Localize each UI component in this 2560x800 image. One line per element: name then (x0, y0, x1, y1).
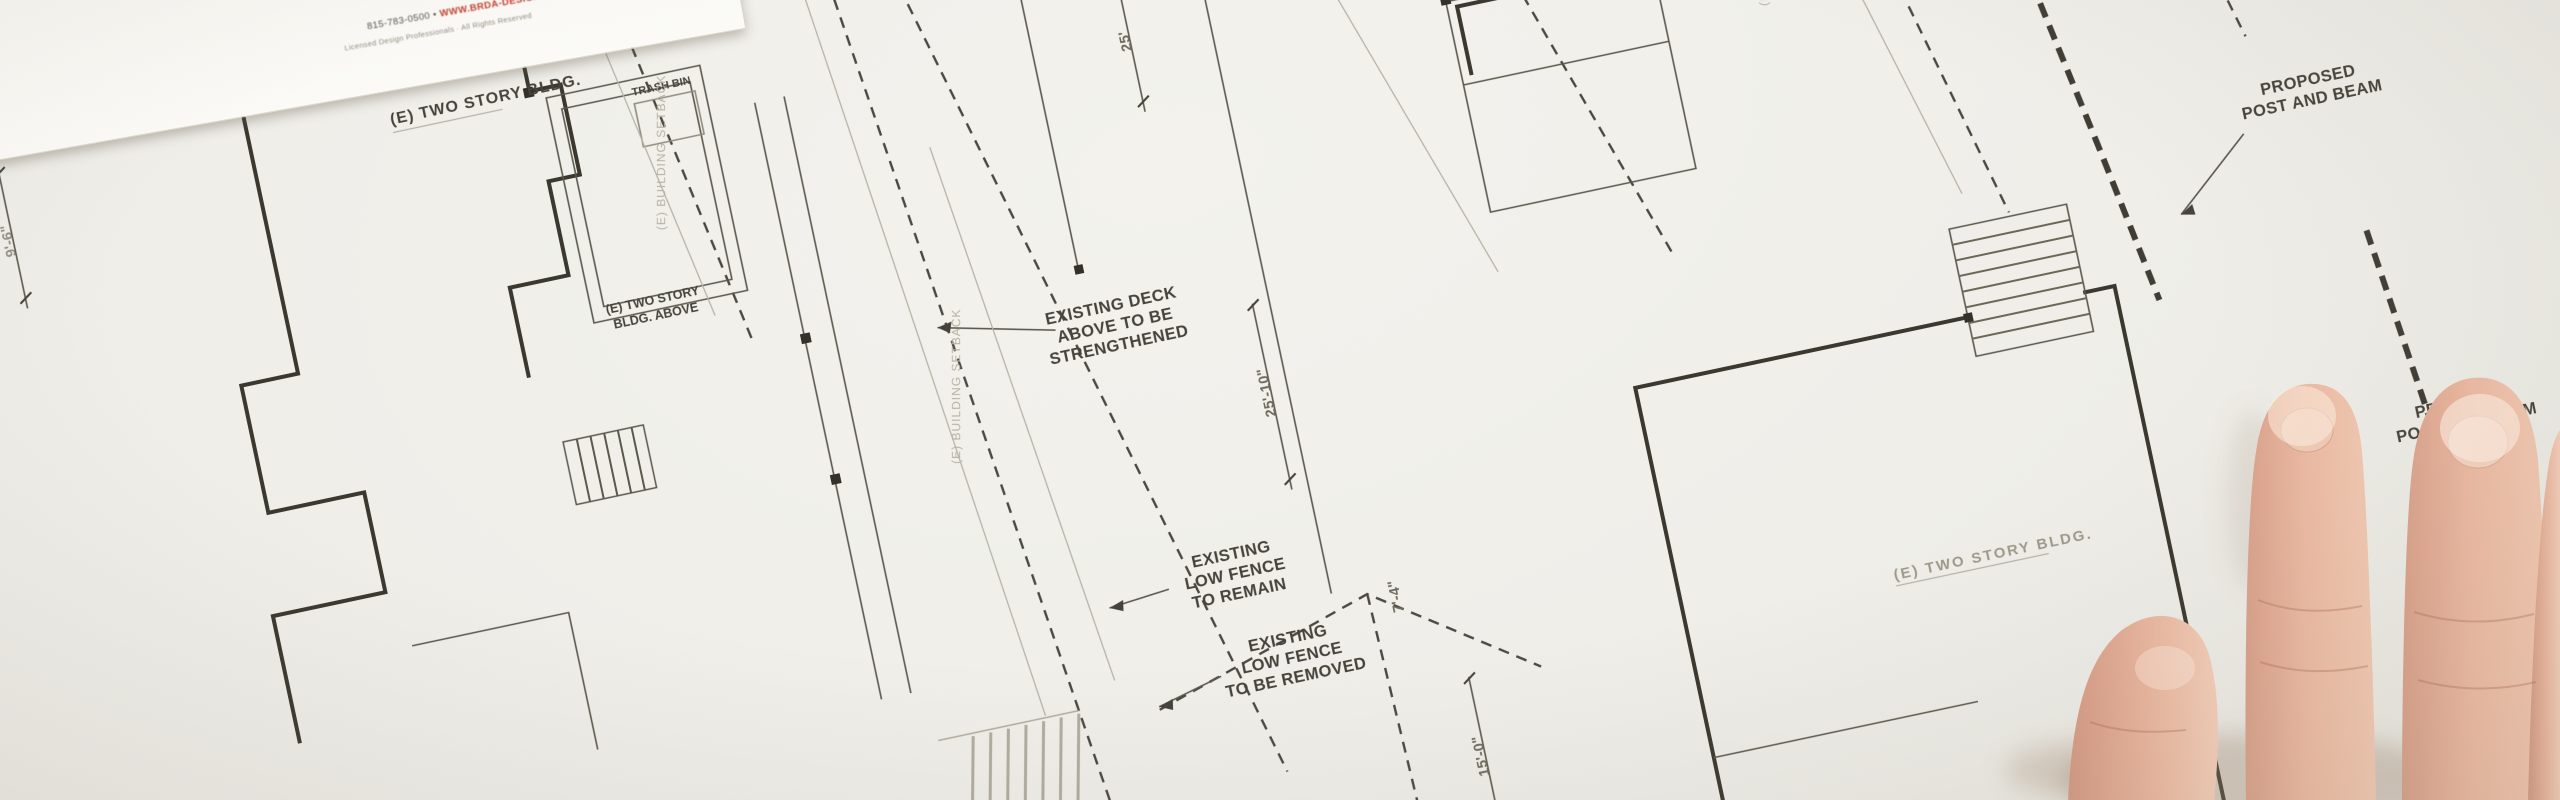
dim-15-0: 15'-0" (1469, 734, 1493, 778)
faint-line-1 (802, 0, 1045, 734)
bottom-left-lines (412, 613, 598, 783)
blueprint-paper: (E) TWO STORY BLDG. (E) TWO STORY BLDG. … (0, 0, 2560, 800)
bold-dash-2 (2366, 226, 2430, 425)
right-bldg-interior-line (1714, 701, 1978, 757)
leader-arrowheads (937, 64, 2252, 741)
dashed-line-6 (1399, 0, 1673, 290)
stair-bottom-hatch (944, 714, 1107, 800)
right-building-outline (1635, 286, 2239, 800)
inner-bldg-rect (546, 65, 747, 323)
walkway-lines (755, 96, 911, 699)
faint-lines (361, 0, 2049, 800)
leader-lines (937, 54, 2313, 736)
label-setback-2: (E) BUILDING SETBACK (1757, 0, 1771, 6)
thin-lines (0, 0, 2352, 800)
bold-dash-1 (2040, 0, 2159, 311)
dim-25: 25' (1116, 29, 1136, 52)
dim-7-4: 7'-4" (1385, 578, 1407, 613)
left-building-steps (471, 85, 619, 376)
dashed-line-2 (857, 0, 1287, 800)
plan-drawing: (E) TWO STORY BLDG. (E) TWO STORY BLDG. … (0, 0, 2560, 800)
label-two-story-2: (E) TWO STORY BLDG. (1892, 525, 2094, 584)
label-setback-3: (E) BUILDING SETBACK (654, 75, 668, 230)
dim-9-6: 9'-6" (0, 223, 20, 258)
upper-right-corner-wall (1457, 0, 1554, 73)
label-setback-1: (E) BUILDING SETBACK (949, 309, 963, 464)
blueprint-photo: (E) TWO STORY BLDG. (E) TWO STORY BLDG. … (0, 0, 2560, 800)
staircase-right (1949, 204, 2093, 356)
post-markers (502, 0, 1974, 606)
dashed-line-4 (1726, 0, 2009, 245)
upper-right-rect (1446, 0, 1696, 212)
faint-line-3 (1717, 0, 1962, 223)
dim-25-10: 25'-10" (1254, 367, 1280, 419)
dashed-line-5 (2076, 0, 2246, 56)
stair-block-left (563, 425, 657, 505)
stair-block-treads (577, 427, 645, 501)
bold-dashed-walls (2040, 0, 2430, 482)
wall-lines (158, 0, 2239, 800)
